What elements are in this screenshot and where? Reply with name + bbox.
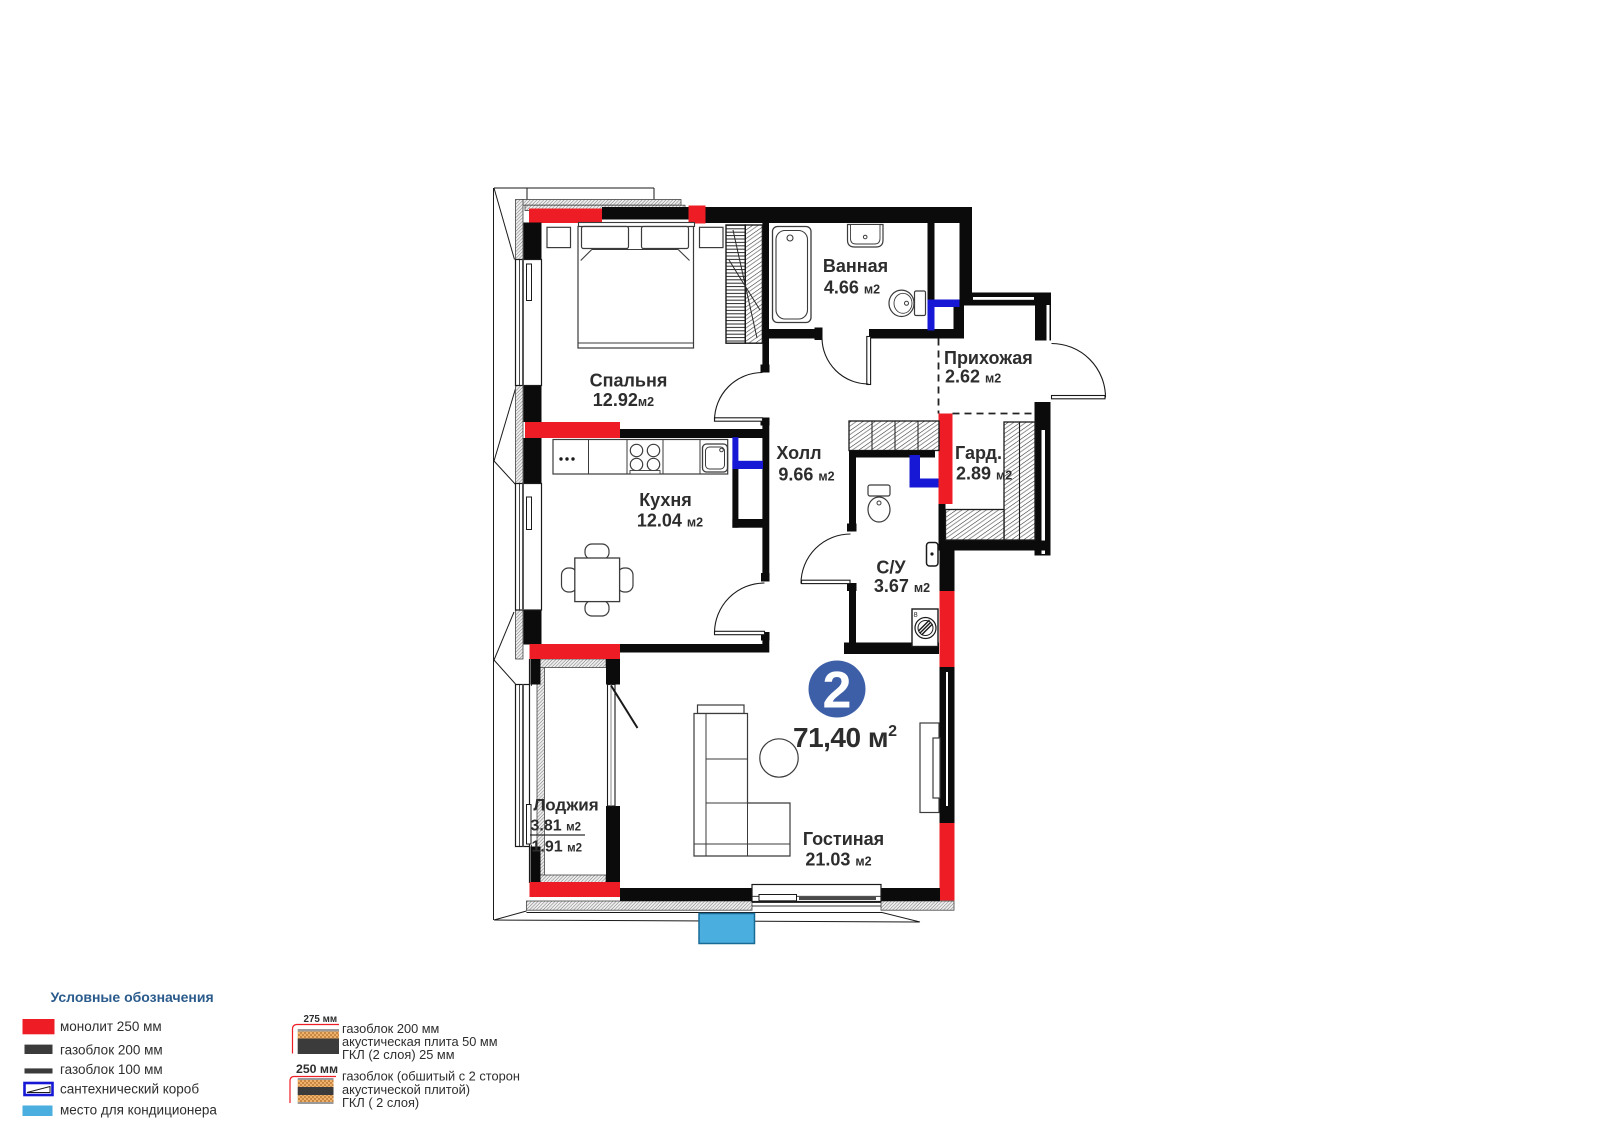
svg-text:Гостиная: Гостиная <box>803 829 884 849</box>
svg-text:Гард.: Гард. <box>955 443 1002 463</box>
svg-text:3.67 м2: 3.67 м2 <box>874 576 930 596</box>
svg-text:Ванная: Ванная <box>823 256 888 276</box>
svg-text:газоблок 200 мм: газоблок 200 мм <box>60 1043 163 1058</box>
svg-text:Холл: Холл <box>776 443 821 463</box>
svg-text:21.03 м2: 21.03 м2 <box>805 850 871 870</box>
svg-text:8: 8 <box>914 610 918 619</box>
svg-text:ГКЛ ( 2 слоя): ГКЛ ( 2 слоя) <box>342 1095 419 1110</box>
svg-text:12.04 м2: 12.04 м2 <box>637 511 703 531</box>
svg-text:газоблок 100 мм: газоблок 100 мм <box>60 1062 163 1077</box>
svg-text:275 мм: 275 мм <box>304 1014 338 1025</box>
svg-text:Условные обозначения: Условные обозначения <box>51 989 214 1005</box>
svg-text:Прихожая: Прихожая <box>944 348 1033 368</box>
svg-text:место для кондиционера: место для кондиционера <box>60 1103 217 1118</box>
svg-text:Лоджия: Лоджия <box>533 796 598 815</box>
svg-text:12.92м2: 12.92м2 <box>593 390 654 410</box>
svg-text:250 мм: 250 мм <box>296 1062 338 1076</box>
svg-text:1.91 м2: 1.91 м2 <box>532 839 583 856</box>
svg-text:9.66 м2: 9.66 м2 <box>778 465 834 485</box>
svg-text:4.66 м2: 4.66 м2 <box>824 278 880 298</box>
svg-text:сантехнический короб: сантехнический короб <box>60 1082 199 1097</box>
svg-text:71,40 м2: 71,40 м2 <box>793 722 897 753</box>
svg-text:ГКЛ (2 слоя) 25 мм: ГКЛ (2 слоя) 25 мм <box>342 1047 455 1062</box>
svg-text:Кухня: Кухня <box>639 490 692 510</box>
svg-text:2: 2 <box>823 662 852 720</box>
svg-text:3.81 м2: 3.81 м2 <box>531 818 582 835</box>
svg-text:монолит 250 мм: монолит 250 мм <box>60 1019 162 1034</box>
svg-text:2.62 м2: 2.62 м2 <box>945 367 1001 387</box>
svg-text:Спальня: Спальня <box>590 371 668 391</box>
svg-text:С/У: С/У <box>876 558 906 578</box>
